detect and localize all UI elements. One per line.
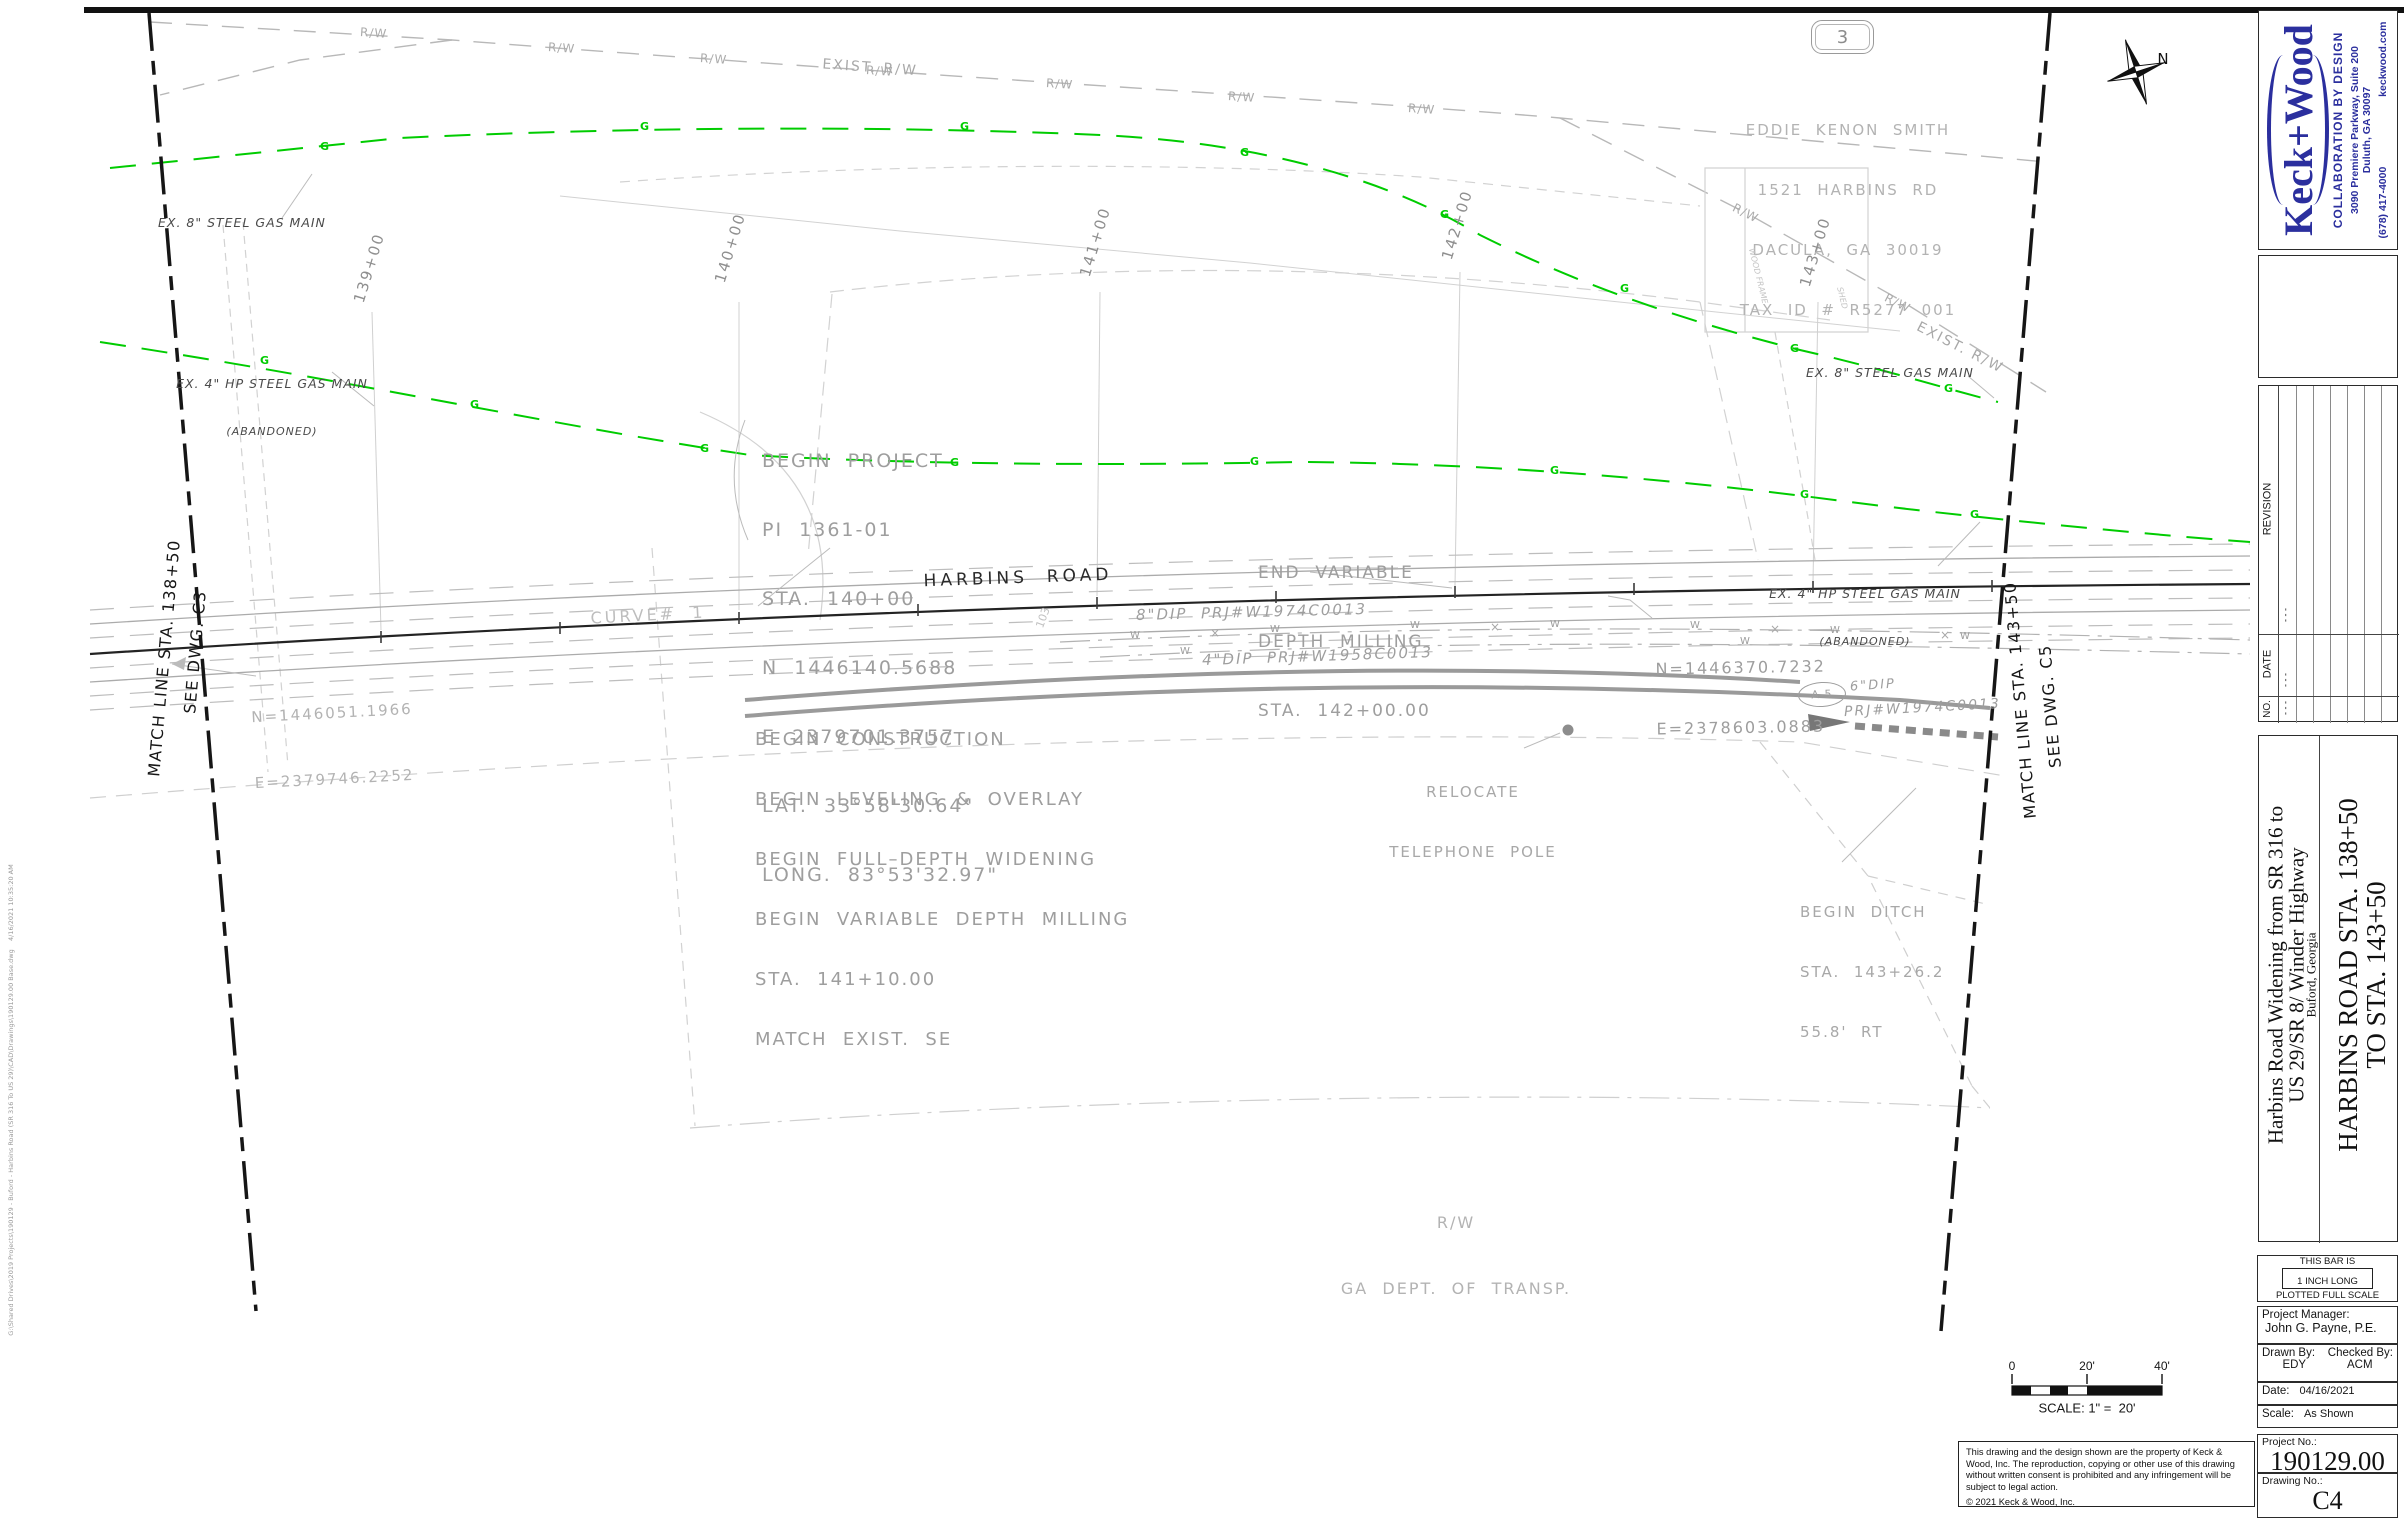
bar-note-line1: THIS BAR IS <box>2300 1256 2355 1267</box>
begin-ditch-line: BEGIN DITCH <box>1800 902 1944 922</box>
project-number-box: Project No.: 190129.00 <box>2257 1434 2398 1473</box>
coord-right-e: E=2378603.0883 <box>1656 717 1827 740</box>
gas-marker: G <box>1550 464 1559 477</box>
scalebar-0: 0 <box>2009 1359 2016 1373</box>
begin-project-line: BEGIN PROJECT <box>762 450 998 473</box>
one-inch-box: 1 INCH LONG <box>2282 1268 2373 1289</box>
gas4-right-line1: EX. 4" HP STEEL GAS MAIN <box>1769 586 1961 602</box>
logo-website: keckwood.com <box>2377 22 2389 97</box>
gas-marker: G <box>1240 146 1249 159</box>
gas-marker: G <box>1250 455 1259 468</box>
drawing-no-value: C4 <box>2262 1487 2393 1516</box>
begin-construction-block: BEGIN CONSTRUCTION BEGIN LEVELING & OVER… <box>755 690 1129 1090</box>
logo-address2: Duluth, GA 30097 <box>2361 87 2373 174</box>
begin-project-line: PI 1361-01 <box>762 519 998 542</box>
date-box: Date: 04/16/2021 <box>2257 1382 2398 1405</box>
water-marker: W <box>1130 630 1140 641</box>
plot-stamp: G:\Shared Drives\2019 Projects\190129 - … <box>8 864 16 1335</box>
rw-label: R/W <box>700 51 728 67</box>
scale-bar <box>2012 1374 2162 1395</box>
sheet-ref-label: 3 <box>1837 27 1848 48</box>
date-label: Date: <box>2262 1385 2290 1402</box>
spare-box <box>2258 255 2398 378</box>
revision-col-header: REVISION <box>2262 483 2275 536</box>
logo-tagline: COLLABORATION BY DESIGN <box>2331 32 2345 229</box>
begin-project-line: N 1446140.5688 <box>762 657 998 680</box>
owner-name: EDDIE KENON SMITH <box>1740 120 1956 140</box>
gas4-left-line2: (ABANDONED) <box>176 424 368 440</box>
end-milling-line: STA. 142+00.00 <box>1258 700 1431 723</box>
coord-left-block: N=1446051.1966 E=2379746.2252 <box>249 654 420 838</box>
gas-marker: G <box>260 354 269 367</box>
owner-city: DACULA, GA 30019 <box>1740 240 1956 260</box>
begin-construction-line: STA. 141+10.00 <box>755 970 1129 990</box>
begin-ditch-line: 55.8' RT <box>1800 1022 1944 1042</box>
begin-construction-line: BEGIN VARIABLE DEPTH MILLING <box>755 910 1129 930</box>
revision-dash: - - - <box>2281 608 2292 622</box>
rw-label: R/W <box>1046 76 1074 92</box>
begin-construction-line: BEGIN FULL–DEPTH WIDENING <box>755 850 1129 870</box>
drawn-by-label: Drawn By: <box>2262 1347 2315 1359</box>
rw-label: R/W <box>1408 101 1436 117</box>
begin-ditch-line: STA. 143+26.2 <box>1800 962 1944 982</box>
dip6-label: 6"DIP <box>1850 676 1897 694</box>
logo-phone: (678) 417-4000 <box>2377 167 2389 239</box>
copyright-box: This drawing and the design shown are th… <box>1958 1441 2255 1507</box>
bar-note-line3: PLOTTED FULL SCALE <box>2276 1290 2379 1301</box>
owner-street: 1521 HARBINS RD <box>1740 180 1956 200</box>
revision-dash: - - - <box>2281 701 2292 715</box>
gas-marker: G <box>1944 382 1953 395</box>
relocate-line: RELOCATE <box>1389 782 1557 802</box>
drawn-checked-box: Drawn By: Checked By: EDY ACM <box>2257 1344 2398 1382</box>
revision-dash: - - - <box>2281 673 2292 687</box>
gas8-label-right: EX. 8" STEEL GAS MAIN <box>1806 366 1974 381</box>
rw-dept-line: R/W <box>1341 1212 1571 1234</box>
gas-marker: G <box>1620 282 1629 295</box>
gas-marker: G <box>1790 342 1799 355</box>
checked-by-label: Checked By: <box>2328 1347 2393 1359</box>
fence-marker: × <box>1940 628 1950 642</box>
water-marker: W <box>1960 631 1970 642</box>
rw-label: R/W <box>866 63 894 79</box>
end-milling-line: END VARIABLE <box>1258 562 1431 585</box>
plan-sheet: 3 N EDDIE KENON SMITH 1521 HARBINS RD DA… <box>0 0 2404 1521</box>
gas-marker: G <box>640 120 649 133</box>
no-col-header: NO. <box>2262 700 2274 718</box>
gas-marker: G <box>1440 208 1449 221</box>
begin-project-line: STA. 140+00 <box>762 588 998 611</box>
water-marker: W <box>1550 619 1560 630</box>
relocate-line: TELEPHONE POLE <box>1389 842 1557 862</box>
water-marker: W <box>1830 625 1840 636</box>
rw-dept-block: R/W GA DEPT. OF TRANSP. <box>1341 1168 1571 1344</box>
rw-label: R/W <box>1228 89 1256 105</box>
coord-left-n: N=1446051.1966 <box>251 698 413 728</box>
drawing-number-box: Drawing No.: C4 <box>2257 1473 2398 1518</box>
north-arrow <box>2097 30 2175 113</box>
scalebar-40: 40' <box>2154 1359 2170 1373</box>
gas-marker: G <box>1800 488 1809 501</box>
begin-construction-line: BEGIN CONSTRUCTION <box>755 730 1129 750</box>
gas-marker: G <box>470 398 479 411</box>
a5-label: A-5 <box>1811 687 1833 701</box>
fence-marker: × <box>1210 626 1220 640</box>
rw-dept-line: GA DEPT. OF TRANSP. <box>1341 1278 1571 1300</box>
copyright-body: This drawing and the design shown are th… <box>1966 1447 2247 1493</box>
project-title-line3: Buford, Georgia <box>2303 933 2318 1018</box>
gas-marker: G <box>960 120 969 133</box>
gas-marker: G <box>1970 508 1979 521</box>
fence-marker: × <box>1490 620 1500 634</box>
gas4-label-left: EX. 4" HP STEEL GAS MAIN (ABANDONED) <box>176 344 368 472</box>
coord-right-n: N=1446370.7232 <box>1655 657 1826 680</box>
scale-value: As Shown <box>2304 1408 2354 1425</box>
revision-table <box>2258 385 2398 722</box>
water-marker: W <box>1180 646 1190 657</box>
sheet-ref-bubble: 3 <box>1811 20 1874 54</box>
bar-note-box: THIS BAR IS 1 INCH LONG PLOTTED FULL SCA… <box>2257 1255 2398 1302</box>
begin-construction-line: MATCH EXIST. SE <box>755 1030 1129 1050</box>
scale-label: Scale: <box>2262 1408 2294 1425</box>
owner-block: EDDIE KENON SMITH 1521 HARBINS RD DACULA… <box>1740 80 1956 360</box>
relocate-pole-block: RELOCATE TELEPHONE POLE <box>1389 742 1557 902</box>
north-label: N <box>2157 51 2168 69</box>
copyright-line: © 2021 Keck & Wood, Inc. <box>1966 1497 2247 1507</box>
gas4-left-line1: EX. 4" HP STEEL GAS MAIN <box>176 376 368 392</box>
date-value: 04/16/2021 <box>2300 1385 2355 1402</box>
pm-label: Project Manager: <box>2262 1309 2393 1321</box>
gas-marker: G <box>320 140 329 153</box>
bar-note-line2: 1 INCH LONG <box>2297 1276 2358 1287</box>
rw-label: R/W <box>548 40 576 56</box>
logo-content: Keck+Wood COLLABORATION BY DESIGN 3090 P… <box>2265 17 2391 243</box>
telephone-pole <box>1563 725 1574 736</box>
sheet-title-line2: TO STA. 143+50 <box>2361 881 2393 1068</box>
gas-marker: G <box>700 442 709 455</box>
drawn-by-value: EDY <box>2282 1359 2306 1371</box>
gas-line-8in <box>110 129 1998 402</box>
begin-ditch-block: BEGIN DITCH STA. 143+26.2 55.8' RT <box>1800 862 1944 1082</box>
rw-label: R/W <box>360 25 388 41</box>
date-col-header: DATE <box>2262 650 2275 679</box>
project-manager-box: Project Manager: John G. Payne, P.E. <box>2257 1306 2398 1344</box>
scale-box: Scale: As Shown <box>2257 1405 2398 1428</box>
checked-by-value: ACM <box>2347 1359 2373 1371</box>
project-no-value: 190129.00 <box>2262 1448 2393 1475</box>
pm-value: John G. Payne, P.E. <box>2265 1321 2393 1335</box>
logo-address1: 3090 Premiere Parkway, Suite 200 <box>2349 46 2361 214</box>
scalebar-caption: SCALE: 1" = 20' <box>2038 1400 2135 1415</box>
logo-swoosh-bottom <box>2313 55 2329 205</box>
coord-left-e: E=2379746.2252 <box>254 764 416 794</box>
end-milling-block: END VARIABLE DEPTH MILLING STA. 142+00.0… <box>1258 516 1431 769</box>
scalebar-20: 20' <box>2079 1359 2095 1373</box>
gas8-label-left: EX. 8" STEEL GAS MAIN <box>158 216 326 231</box>
begin-construction-line: BEGIN LEVELING & OVERLAY <box>755 790 1129 810</box>
